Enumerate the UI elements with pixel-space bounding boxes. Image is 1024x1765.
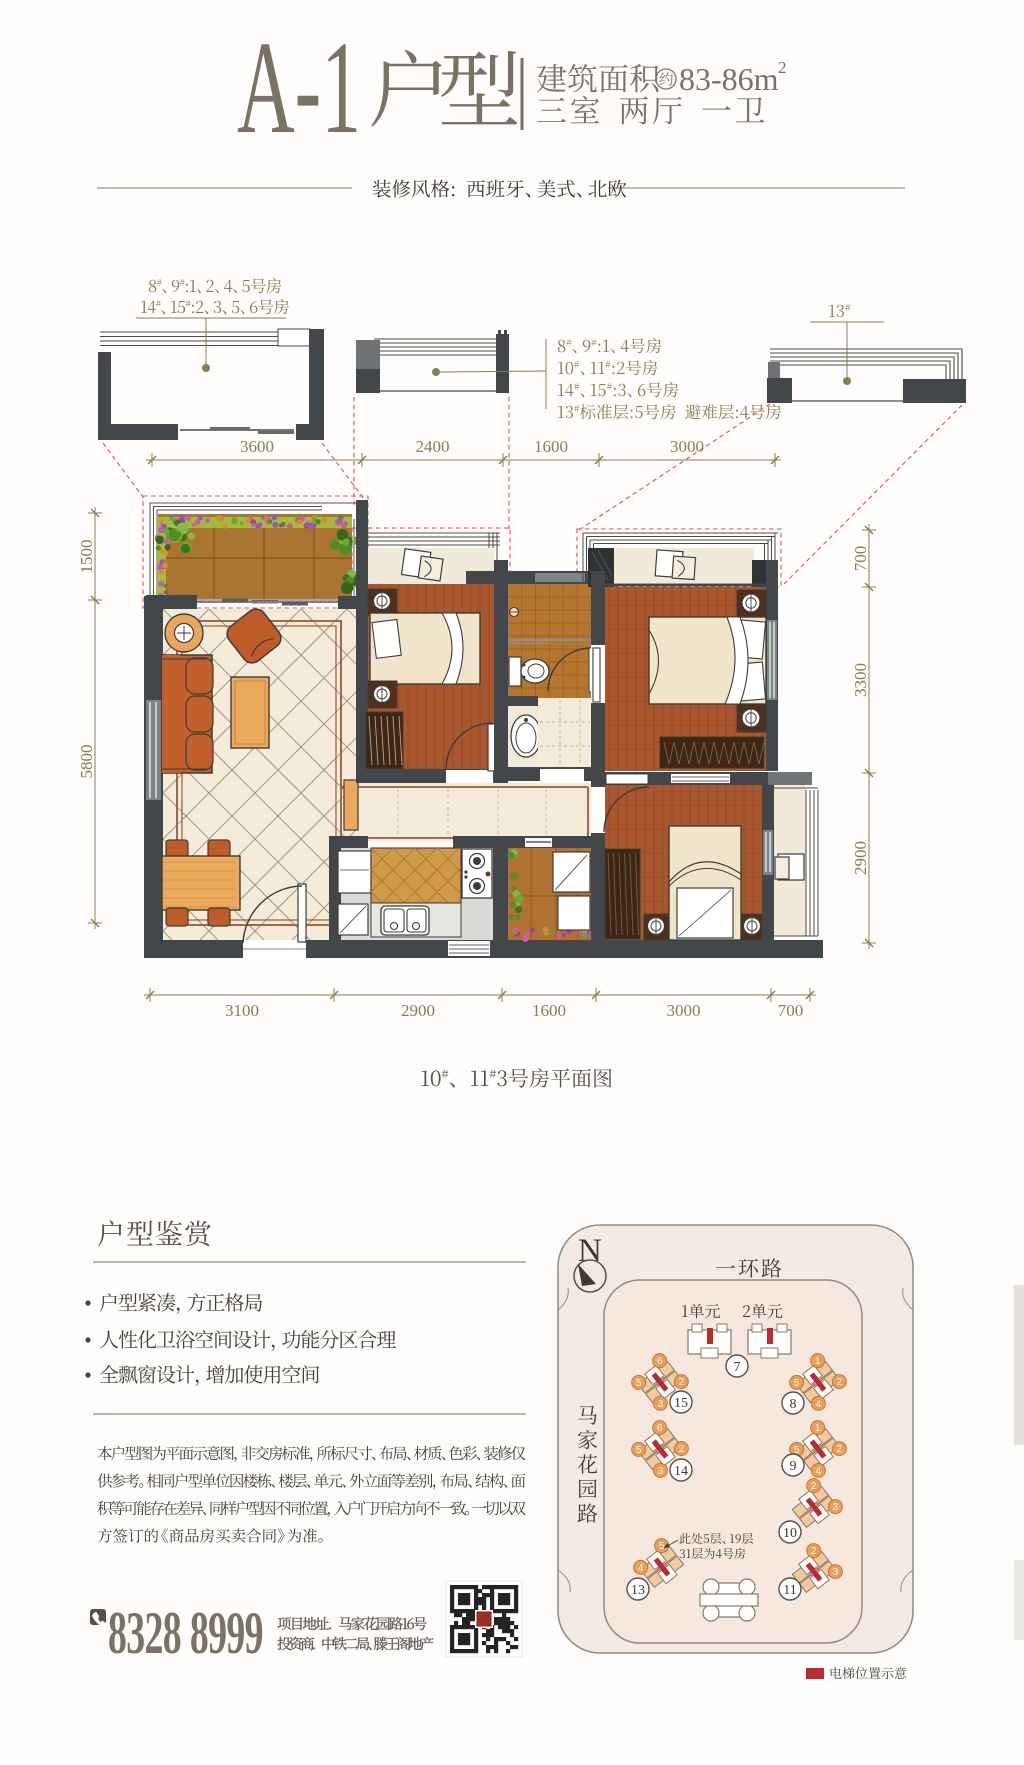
- svg-text:5800: 5800: [77, 745, 96, 779]
- svg-text:13: 13: [631, 1583, 645, 1598]
- svg-text:1600: 1600: [532, 1001, 566, 1020]
- svg-text:2: 2: [778, 58, 787, 77]
- svg-text:8328 8999: 8328 8999: [108, 1599, 263, 1666]
- svg-text:2900: 2900: [401, 1001, 435, 1020]
- svg-text:2: 2: [811, 1481, 817, 1492]
- svg-text:2400: 2400: [416, 437, 450, 456]
- svg-text:5: 5: [636, 1378, 642, 1389]
- svg-text:3000: 3000: [670, 437, 704, 456]
- svg-text:6: 6: [657, 1423, 663, 1434]
- svg-text:2900: 2900: [851, 841, 870, 875]
- svg-text:5: 5: [794, 1378, 800, 1389]
- svg-text:4: 4: [638, 1563, 644, 1574]
- svg-text:5: 5: [659, 1541, 665, 1552]
- svg-text:A-1: A-1: [237, 13, 361, 161]
- svg-text:3000: 3000: [667, 1001, 701, 1020]
- svg-text:N: N: [578, 1233, 602, 1269]
- svg-text:7: 7: [734, 1360, 741, 1375]
- svg-text:14: 14: [674, 1464, 688, 1479]
- svg-text:2: 2: [837, 1444, 843, 1455]
- svg-text:2: 2: [811, 1546, 817, 1557]
- svg-text:11: 11: [783, 1583, 796, 1598]
- svg-text:5: 5: [636, 1445, 642, 1456]
- svg-text:700: 700: [778, 1001, 804, 1020]
- svg-text:3: 3: [833, 1567, 839, 1578]
- svg-text:1: 1: [815, 1423, 821, 1434]
- svg-text:1600: 1600: [534, 437, 568, 456]
- svg-text:15: 15: [674, 1396, 688, 1411]
- svg-text:2: 2: [679, 1377, 685, 1388]
- svg-text:8: 8: [790, 1397, 797, 1412]
- svg-text:9: 9: [790, 1459, 797, 1474]
- svg-text:3: 3: [833, 1502, 839, 1513]
- svg-text:3: 3: [658, 1399, 664, 1410]
- svg-text:3: 3: [658, 1466, 664, 1477]
- svg-text:1: 1: [815, 1356, 821, 1367]
- svg-text:3100: 3100: [225, 1001, 259, 1020]
- svg-text:4: 4: [816, 1399, 822, 1410]
- svg-text:83-86m: 83-86m: [679, 61, 779, 97]
- svg-text:6: 6: [657, 1356, 663, 1367]
- svg-text:1500: 1500: [77, 540, 96, 574]
- svg-text:700: 700: [851, 546, 870, 572]
- svg-text:2: 2: [837, 1377, 843, 1388]
- svg-text:3300: 3300: [851, 663, 870, 697]
- svg-text:2: 2: [679, 1444, 685, 1455]
- svg-text:4: 4: [816, 1466, 822, 1477]
- svg-text:3600: 3600: [240, 437, 274, 456]
- svg-text:10: 10: [783, 1526, 797, 1541]
